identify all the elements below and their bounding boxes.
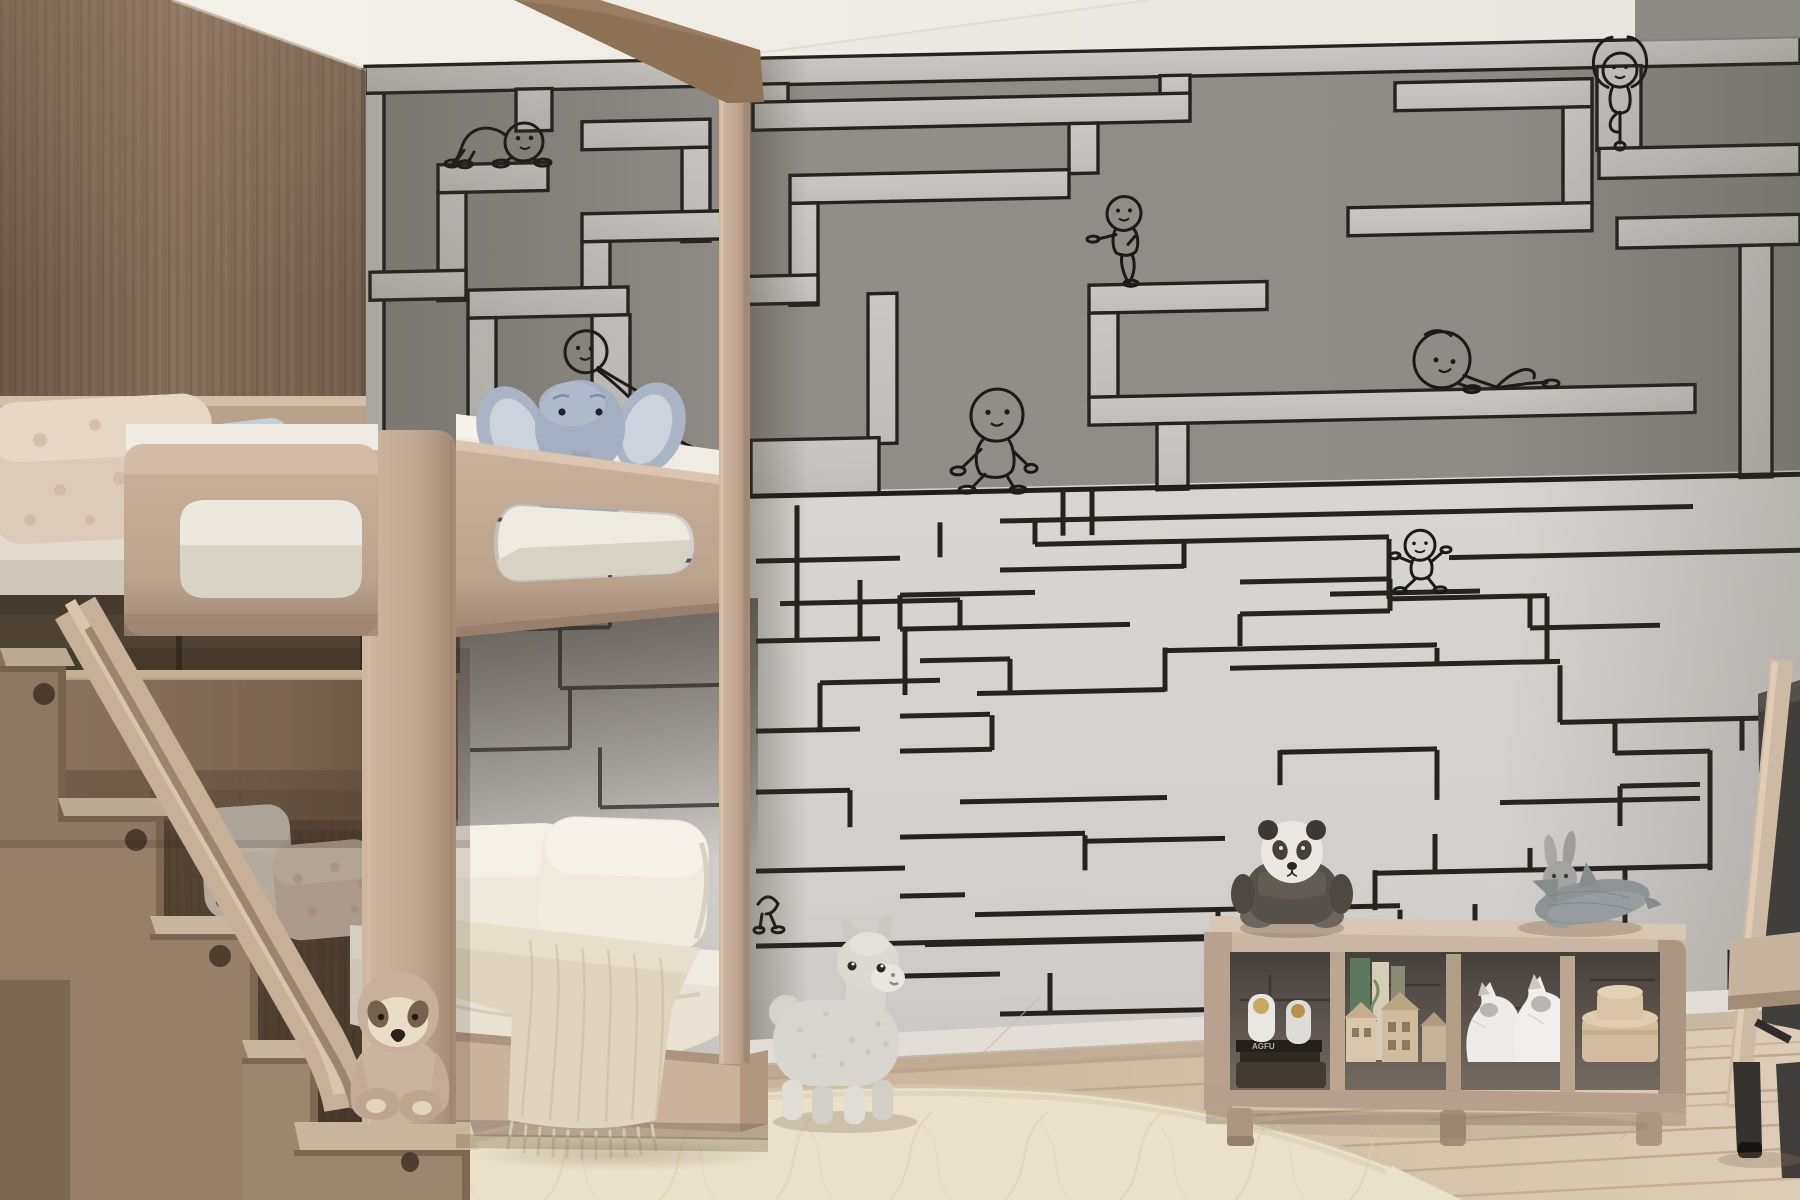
svg-text:AGFU: AGFU xyxy=(1252,1042,1275,1051)
